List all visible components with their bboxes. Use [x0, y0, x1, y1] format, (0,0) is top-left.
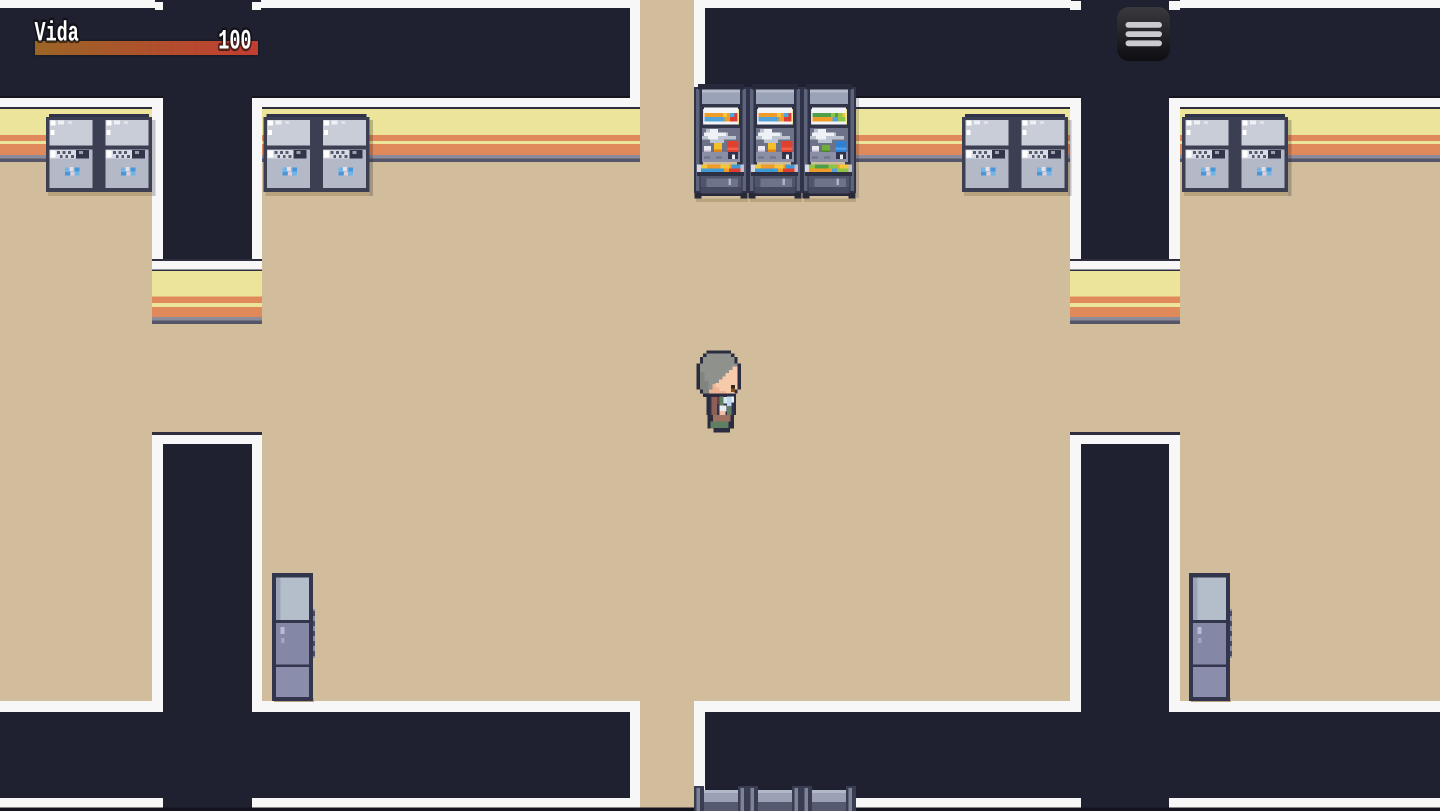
svg-text:Vida: Vida: [35, 18, 79, 50]
svg-text:100: 100: [218, 26, 251, 58]
